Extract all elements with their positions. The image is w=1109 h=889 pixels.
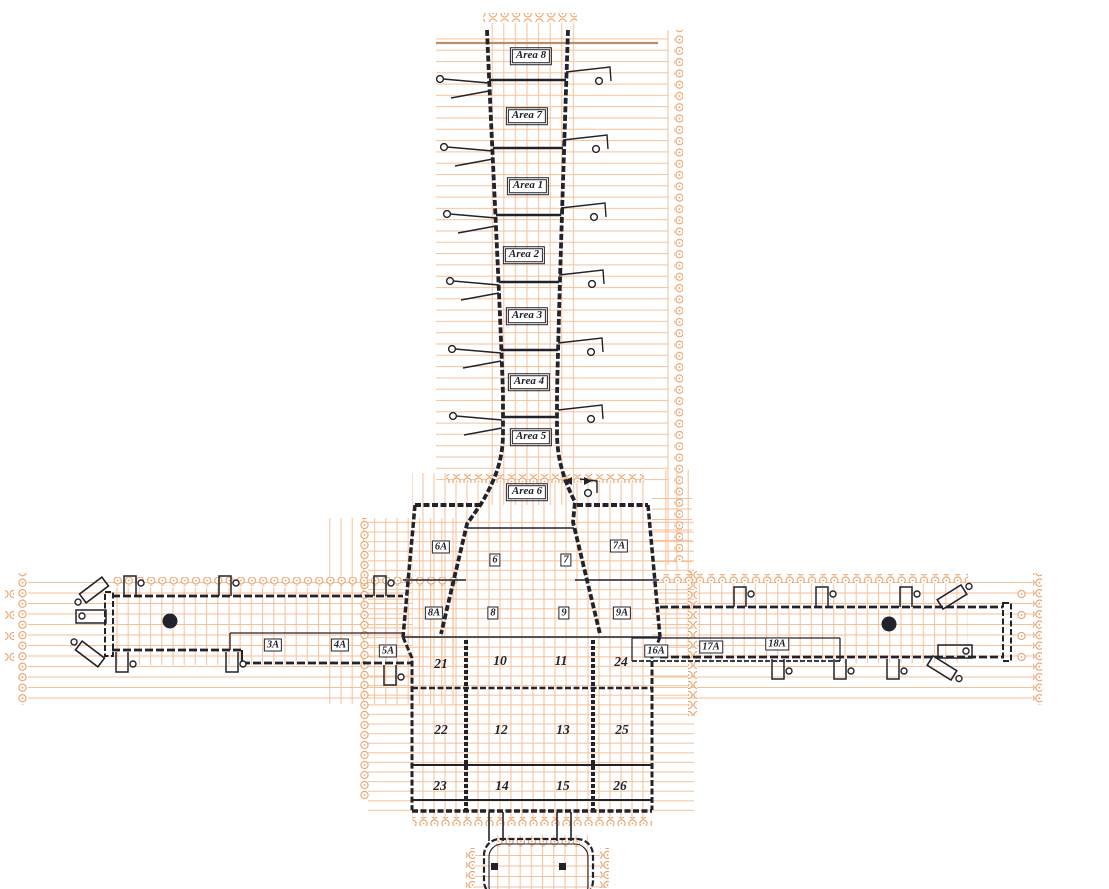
zone-label: 4A	[331, 638, 349, 651]
zone-label: 18A	[765, 637, 789, 650]
area-label: Area 4	[510, 375, 548, 389]
zone-label: 5A	[379, 644, 397, 657]
room-number: 23	[433, 779, 447, 793]
room-number: 26	[613, 779, 627, 793]
room-number: 21	[434, 657, 448, 671]
room-number: 24	[614, 655, 628, 669]
zone-label: 9A	[613, 606, 631, 619]
zone-label: 16A	[644, 644, 668, 657]
zone-label: 3A	[264, 638, 282, 651]
zone-label: 6A	[432, 540, 450, 553]
zone-label: 8	[487, 606, 498, 619]
zone-label: 7A	[610, 539, 628, 552]
room-number: 15	[556, 779, 570, 793]
zone-label: 8A	[425, 606, 443, 619]
room-number: 14	[495, 779, 509, 793]
room-number: 13	[556, 723, 570, 737]
area-label: Area 1	[509, 179, 547, 193]
zone-label: 17A	[699, 640, 723, 653]
room-number: 12	[494, 723, 508, 737]
zone-label: 9	[558, 606, 569, 619]
room-number: 22	[434, 723, 448, 737]
area-label: Area 3	[508, 309, 546, 323]
room-number: 25	[615, 723, 629, 737]
area-label: Area 6	[508, 485, 546, 499]
room-number: 11	[555, 654, 568, 668]
floor-plan: Area 8 Area 7 Area 1 Area 2 Area 3 Area …	[0, 0, 1109, 889]
zone-label: 6	[489, 553, 500, 566]
room-number: 10	[493, 654, 507, 668]
zone-label: 7	[560, 553, 571, 566]
area-label: Area 2	[505, 248, 543, 262]
structural-grid	[28, 23, 1036, 889]
area-label: Area 8	[512, 49, 550, 63]
floor-plan-drawing	[0, 0, 1109, 889]
area-label: Area 7	[508, 109, 546, 123]
area-label: Area 5	[512, 430, 550, 444]
